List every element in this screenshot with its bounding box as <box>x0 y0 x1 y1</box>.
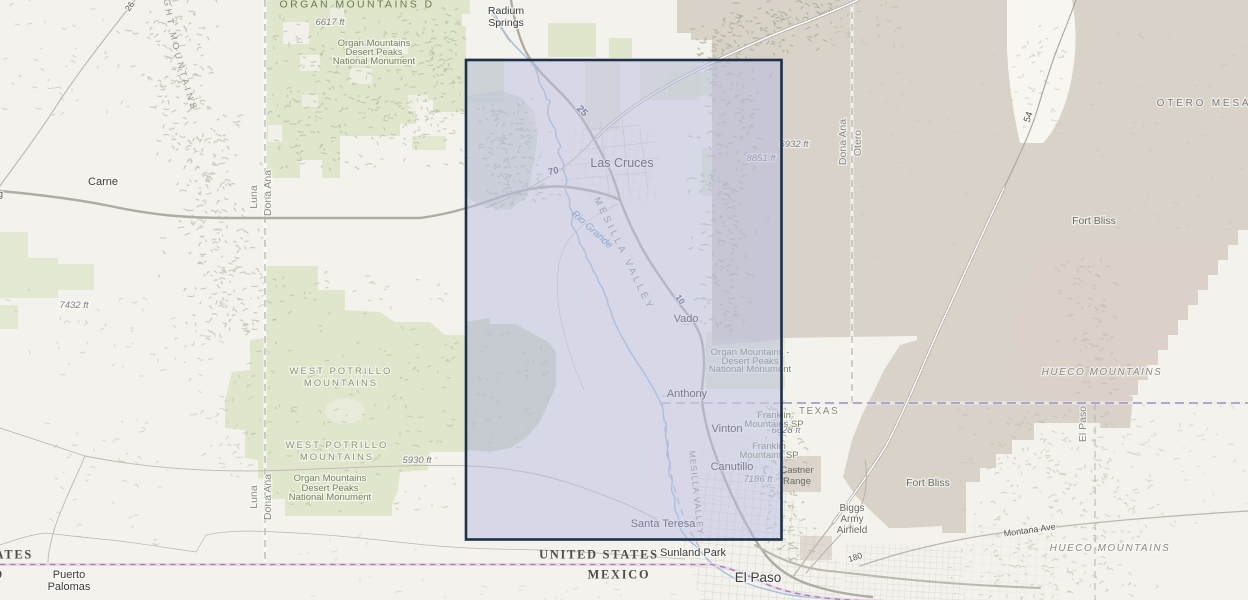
svg-text:Dona Ana: Dona Ana <box>837 119 849 165</box>
svg-text:TEXAS: TEXAS <box>799 406 839 417</box>
svg-text:El Paso: El Paso <box>735 570 782 585</box>
svg-text:Airfield: Airfield <box>837 525 868 536</box>
svg-text:WEST POTRILLO: WEST POTRILLO <box>290 366 393 377</box>
svg-text:HUECO MOUNTAINS: HUECO MOUNTAINS <box>1050 543 1171 554</box>
svg-text:Castner: Castner <box>780 465 813 476</box>
svg-text:MOUNTAINS: MOUNTAINS <box>300 452 374 463</box>
svg-text:National Monument: National Monument <box>333 56 416 67</box>
svg-text:MOUNTAINS: MOUNTAINS <box>304 378 378 389</box>
svg-text:Radium: Radium <box>488 5 524 17</box>
svg-text:WEST POTRILLO: WEST POTRILLO <box>286 440 389 451</box>
svg-text:Puerto: Puerto <box>53 569 85 581</box>
svg-text:UNITED STATES: UNITED STATES <box>0 548 33 562</box>
svg-text:Springs: Springs <box>488 17 524 29</box>
svg-text:ORGAN MOUNTAINS D: ORGAN MOUNTAINS D <box>280 0 435 11</box>
svg-text:Fort Bliss: Fort Bliss <box>906 477 950 489</box>
svg-text:Fort Bliss: Fort Bliss <box>1072 215 1116 227</box>
svg-text:6932 ft: 6932 ft <box>779 139 808 150</box>
svg-text:Carne: Carne <box>88 176 118 188</box>
svg-text:Dona Ana: Dona Ana <box>262 170 274 216</box>
svg-text:Army: Army <box>840 514 863 525</box>
svg-text:5930 ft: 5930 ft <box>402 455 431 466</box>
svg-text:National Monument: National Monument <box>289 492 372 503</box>
svg-text:Luna: Luna <box>248 185 260 209</box>
svg-text:MEXICO: MEXICO <box>588 568 651 582</box>
svg-text:Range: Range <box>783 476 811 487</box>
svg-text:OTERO MESA: OTERO MESA <box>1157 98 1248 109</box>
svg-text:Dona Ana: Dona Ana <box>262 474 274 520</box>
svg-text:El Paso: El Paso <box>1077 406 1089 442</box>
svg-text:6617 ft: 6617 ft <box>315 17 344 28</box>
svg-text:g: g <box>0 189 3 199</box>
svg-text:Biggs: Biggs <box>839 503 864 514</box>
svg-text:UNITED STATES: UNITED STATES <box>539 548 659 562</box>
svg-text:Sunland Park: Sunland Park <box>660 547 727 559</box>
svg-text:HUECO MOUNTAINS: HUECO MOUNTAINS <box>1042 367 1163 378</box>
svg-text:Luna: Luna <box>248 485 260 509</box>
svg-text:Palomas: Palomas <box>48 581 91 593</box>
svg-text:Otero: Otero <box>852 130 864 156</box>
svg-text:7432 ft: 7432 ft <box>59 300 88 311</box>
svg-text:MEXICO: MEXICO <box>0 568 4 582</box>
